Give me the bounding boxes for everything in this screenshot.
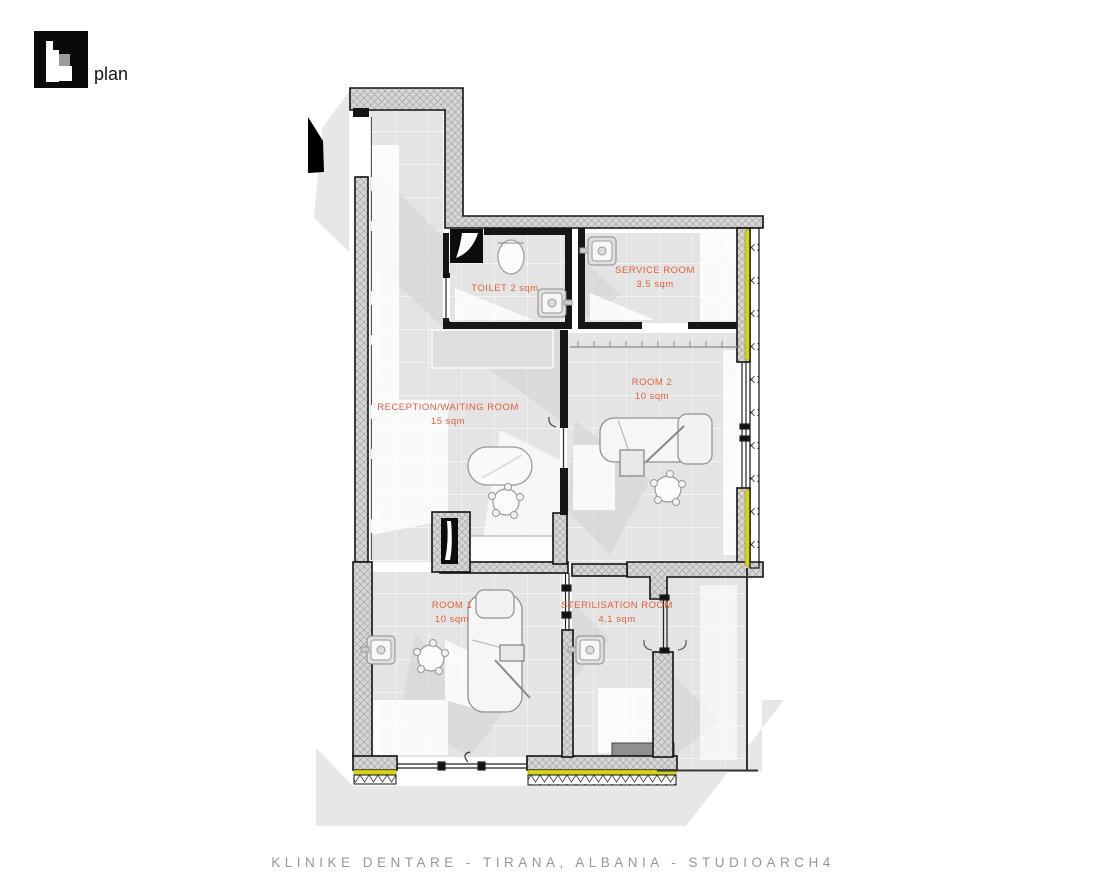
room-label-reception: RECEPTION/WAITING ROOM [377, 402, 519, 413]
glazed-window-room2 [740, 362, 749, 488]
logo-text: plan [94, 64, 128, 84]
dental-chair-icon [468, 590, 530, 712]
shaft-icon [450, 229, 483, 263]
room-label-sterilisation: STERILISATION ROOM [561, 600, 673, 611]
reception-counter [432, 330, 553, 368]
window-strip-bottom-right [528, 770, 676, 775]
wall-node [553, 513, 567, 564]
room-label-service: SERVICE ROOM [615, 265, 695, 276]
entry-arrow-icon [308, 117, 324, 173]
room-label-sterilisation-area: 4.1 sqm [598, 614, 635, 625]
window-strip-bottom-left [354, 770, 396, 775]
wall-bottom-left-block [353, 756, 397, 770]
reception-desk [466, 536, 557, 562]
room-label-toilet: TOILET 2 sqm [471, 283, 538, 294]
wall-steril-top [572, 564, 627, 576]
shaft-icon [441, 518, 458, 564]
room-label-room1: ROOM 1 [432, 600, 472, 611]
room-label-room1-area: 10 sqm [435, 614, 469, 625]
studio-logo: plan [34, 31, 128, 88]
room-label-service-area: 3.5 sqm [636, 279, 673, 290]
window-strip-right-lower [745, 490, 750, 566]
toilet-fixture-icon [498, 240, 524, 274]
drawing-title: KLINIKE DENTARE - TIRANA, ALBANIA - STUD… [271, 855, 835, 870]
room-label-room2: ROOM 2 [632, 377, 672, 388]
window-vhatch-right [528, 775, 676, 785]
window-xmarks-column [750, 228, 759, 568]
wall-steril-right-lower [653, 652, 673, 757]
waiting-table [468, 447, 532, 485]
wall-bottom-right-block [527, 756, 677, 770]
floor-plan-drawing: TOILET 2 sqm SERVICE ROOM 3.5 sqm RECEPT… [0, 0, 1100, 889]
floor-plan-page: TOILET 2 sqm SERVICE ROOM 3.5 sqm RECEPT… [0, 0, 1100, 889]
window-vhatch-left [354, 775, 396, 784]
room-label-reception-area: 15 sqm [431, 416, 465, 427]
window-strip-right-upper [745, 230, 750, 360]
room-label-room2-area: 10 sqm [635, 391, 669, 402]
wall-left-upper [355, 177, 368, 562]
